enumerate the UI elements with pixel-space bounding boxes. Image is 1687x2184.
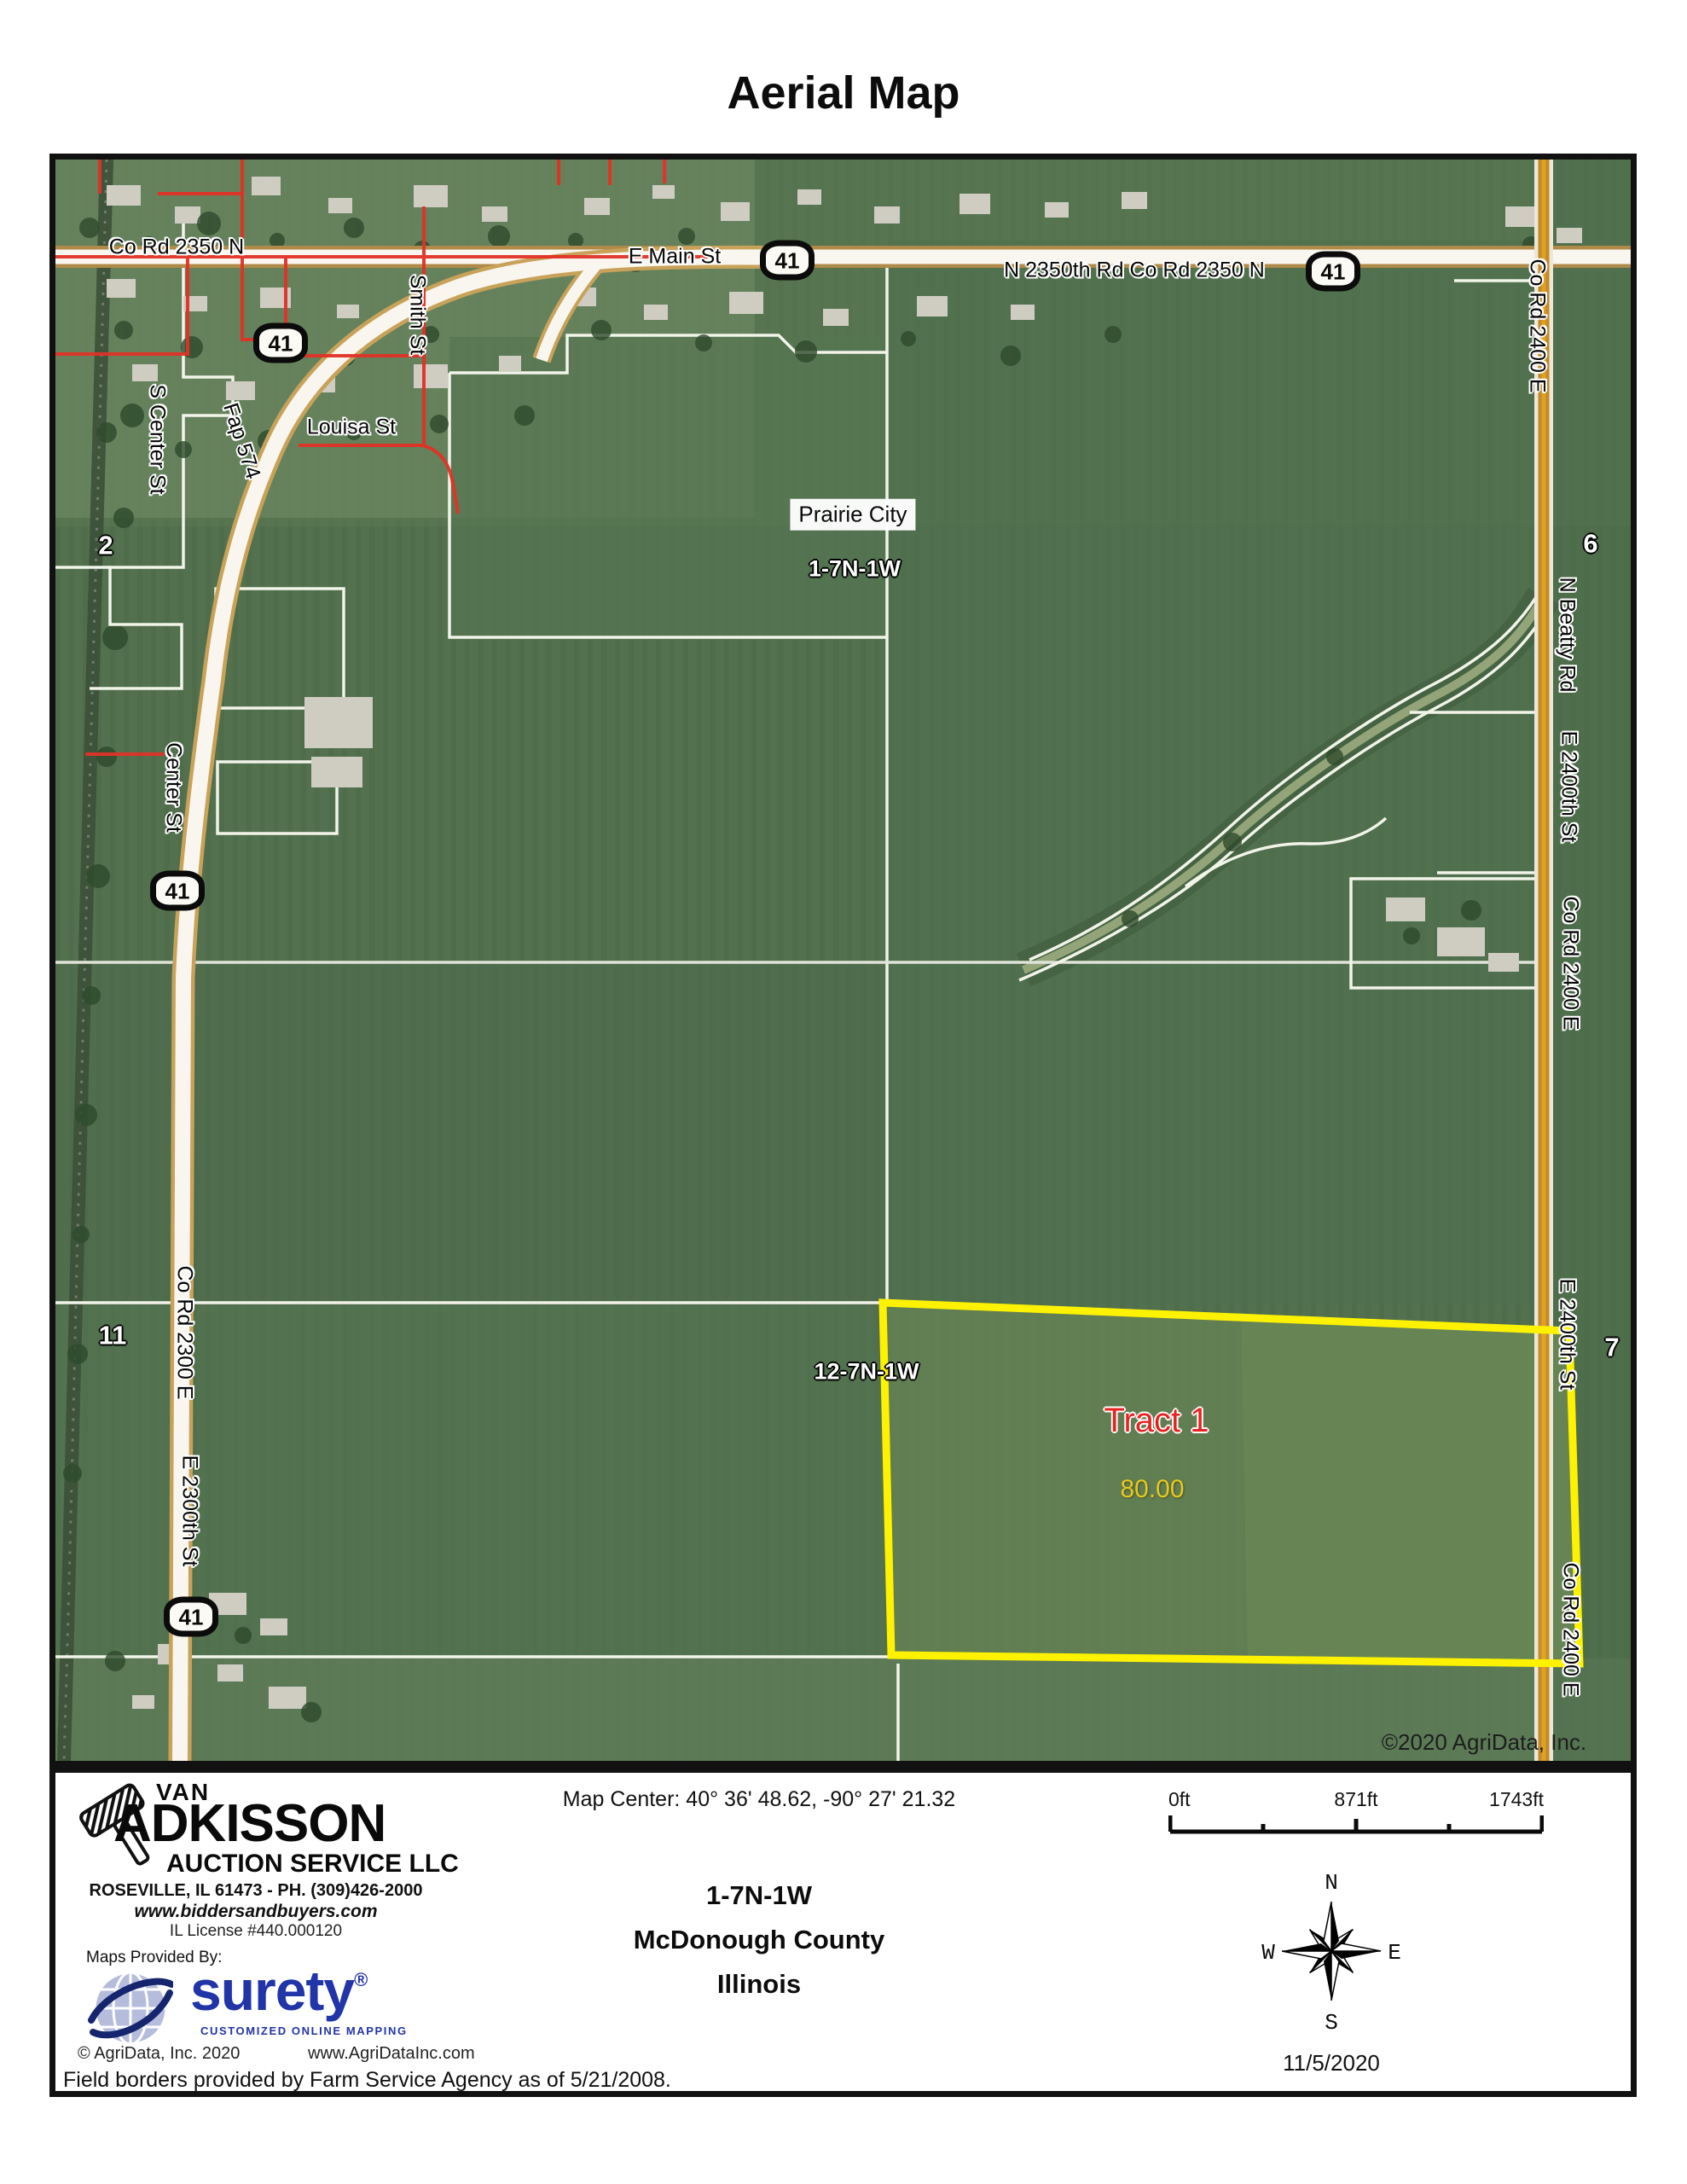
map-label-road: Co Rd 2400 E bbox=[1527, 258, 1548, 392]
map-label-citybox: Prairie City bbox=[790, 499, 915, 531]
surety-logo-text: surety® bbox=[190, 1962, 367, 2018]
compass-e: E bbox=[1388, 1940, 1401, 1966]
compass-n: N bbox=[1325, 1870, 1338, 1896]
scale-labels: 0ft 871ft 1743ft bbox=[1168, 1788, 1544, 1810]
map-label-road: E 2400th St bbox=[1557, 1279, 1578, 1391]
map-label-section: 6 bbox=[1583, 531, 1597, 557]
map-center-coordinates: Map Center: 40° 36' 48.62, -90° 27' 21.3… bbox=[533, 1787, 985, 1812]
aerial-map: Co Rd 2350 NE Main St41N 2350th Rd Co Rd… bbox=[49, 154, 1637, 1767]
county-label: McDonough County bbox=[533, 1918, 985, 1962]
map-label-road: Co Rd 2400 E bbox=[1560, 896, 1581, 1030]
map-label-road: S Center St bbox=[147, 384, 168, 494]
map-label-road: Louisa St bbox=[307, 417, 396, 439]
surety-tagline: CUSTOMIZED ONLINE MAPPING bbox=[200, 2024, 408, 2037]
map-label-copyright: ©2020 AgriData, Inc. bbox=[1382, 1731, 1586, 1753]
map-label-road: Center St bbox=[163, 742, 184, 833]
scale-bar bbox=[1168, 1814, 1544, 1836]
map-label-road: E 2300th St bbox=[179, 1455, 200, 1567]
map-label-acre: 80.00 bbox=[1120, 1477, 1184, 1502]
logo-license: IL License #440.000120 bbox=[55, 1922, 456, 1941]
map-label-shield: 41 bbox=[150, 871, 205, 911]
map-label-halo: 12-7N-1W bbox=[814, 1361, 919, 1384]
map-label-section: 11 bbox=[99, 1322, 127, 1349]
map-labels-layer: Co Rd 2350 NE Main St41N 2350th Rd Co Rd… bbox=[55, 160, 1631, 1761]
map-date: 11/5/2020 bbox=[1229, 2050, 1434, 2077]
compass-s: S bbox=[1325, 2010, 1338, 2036]
township-label: 1-7N-1W bbox=[533, 1873, 985, 1918]
map-label-section: 7 bbox=[1604, 1334, 1619, 1361]
logo-auction-service: AUCTION SERVICE LLC bbox=[166, 1850, 459, 1879]
map-label-road: Co Rd 2300 E bbox=[174, 1265, 195, 1399]
map-label-road: N Beatty Rd bbox=[1557, 578, 1578, 693]
surety-globe-icon bbox=[88, 1967, 173, 2049]
compass-rose-icon: N S W E bbox=[1246, 1862, 1417, 2041]
field-borders-disclaimer: Field borders provided by Farm Service A… bbox=[63, 2068, 671, 2093]
compass-w: W bbox=[1261, 1940, 1275, 1966]
footer-panel: VAN ADKISSON AUCTION SERVICE LLC ROSEVIL… bbox=[49, 1767, 1637, 2097]
map-label-road: E 2400th St bbox=[1558, 731, 1580, 843]
map-label-shield: 41 bbox=[760, 241, 815, 281]
state-label: Illinois bbox=[533, 1962, 985, 2007]
map-label-road: Co Rd 2350 N bbox=[109, 237, 244, 258]
map-label-tract: Tract 1 bbox=[1104, 1403, 1209, 1438]
map-label-road: Fap 574 bbox=[219, 401, 264, 482]
scale-mid: 871ft bbox=[1168, 1788, 1544, 1811]
aerial-map-page: Aerial Map bbox=[0, 0, 1687, 2184]
map-label-shield: 41 bbox=[1306, 252, 1360, 292]
logo-address: ROSEVILLE, IL 61473 - PH. (309)426-2000 bbox=[55, 1881, 456, 1901]
map-label-road: Smith St bbox=[407, 275, 428, 355]
map-label-shield: 41 bbox=[253, 323, 308, 363]
logo-adkisson: ADKISSON bbox=[113, 1793, 386, 1854]
location-block: 1-7N-1W McDonough County Illinois bbox=[533, 1873, 985, 2007]
page-title: Aerial Map bbox=[0, 67, 1687, 119]
map-label-halo: 1-7N-1W bbox=[809, 558, 901, 581]
registered-mark-icon: ® bbox=[354, 1969, 367, 1990]
logo-website: www.biddersandbuyers.com bbox=[55, 1902, 456, 1922]
map-label-shield: 41 bbox=[164, 1597, 218, 1637]
scale-end: 1743ft bbox=[1489, 1788, 1544, 1811]
map-label-road: N 2350th Rd Co Rd 2350 N bbox=[1004, 260, 1265, 282]
agridata-website: www.AgriDataInc.com bbox=[308, 2044, 475, 2064]
map-label-road: Co Rd 2400 E bbox=[1560, 1562, 1581, 1696]
map-label-road: E Main St bbox=[629, 247, 721, 268]
agridata-copyright: © AgriData, Inc. 2020 bbox=[78, 2044, 240, 2064]
map-label-section: 2 bbox=[98, 532, 113, 559]
